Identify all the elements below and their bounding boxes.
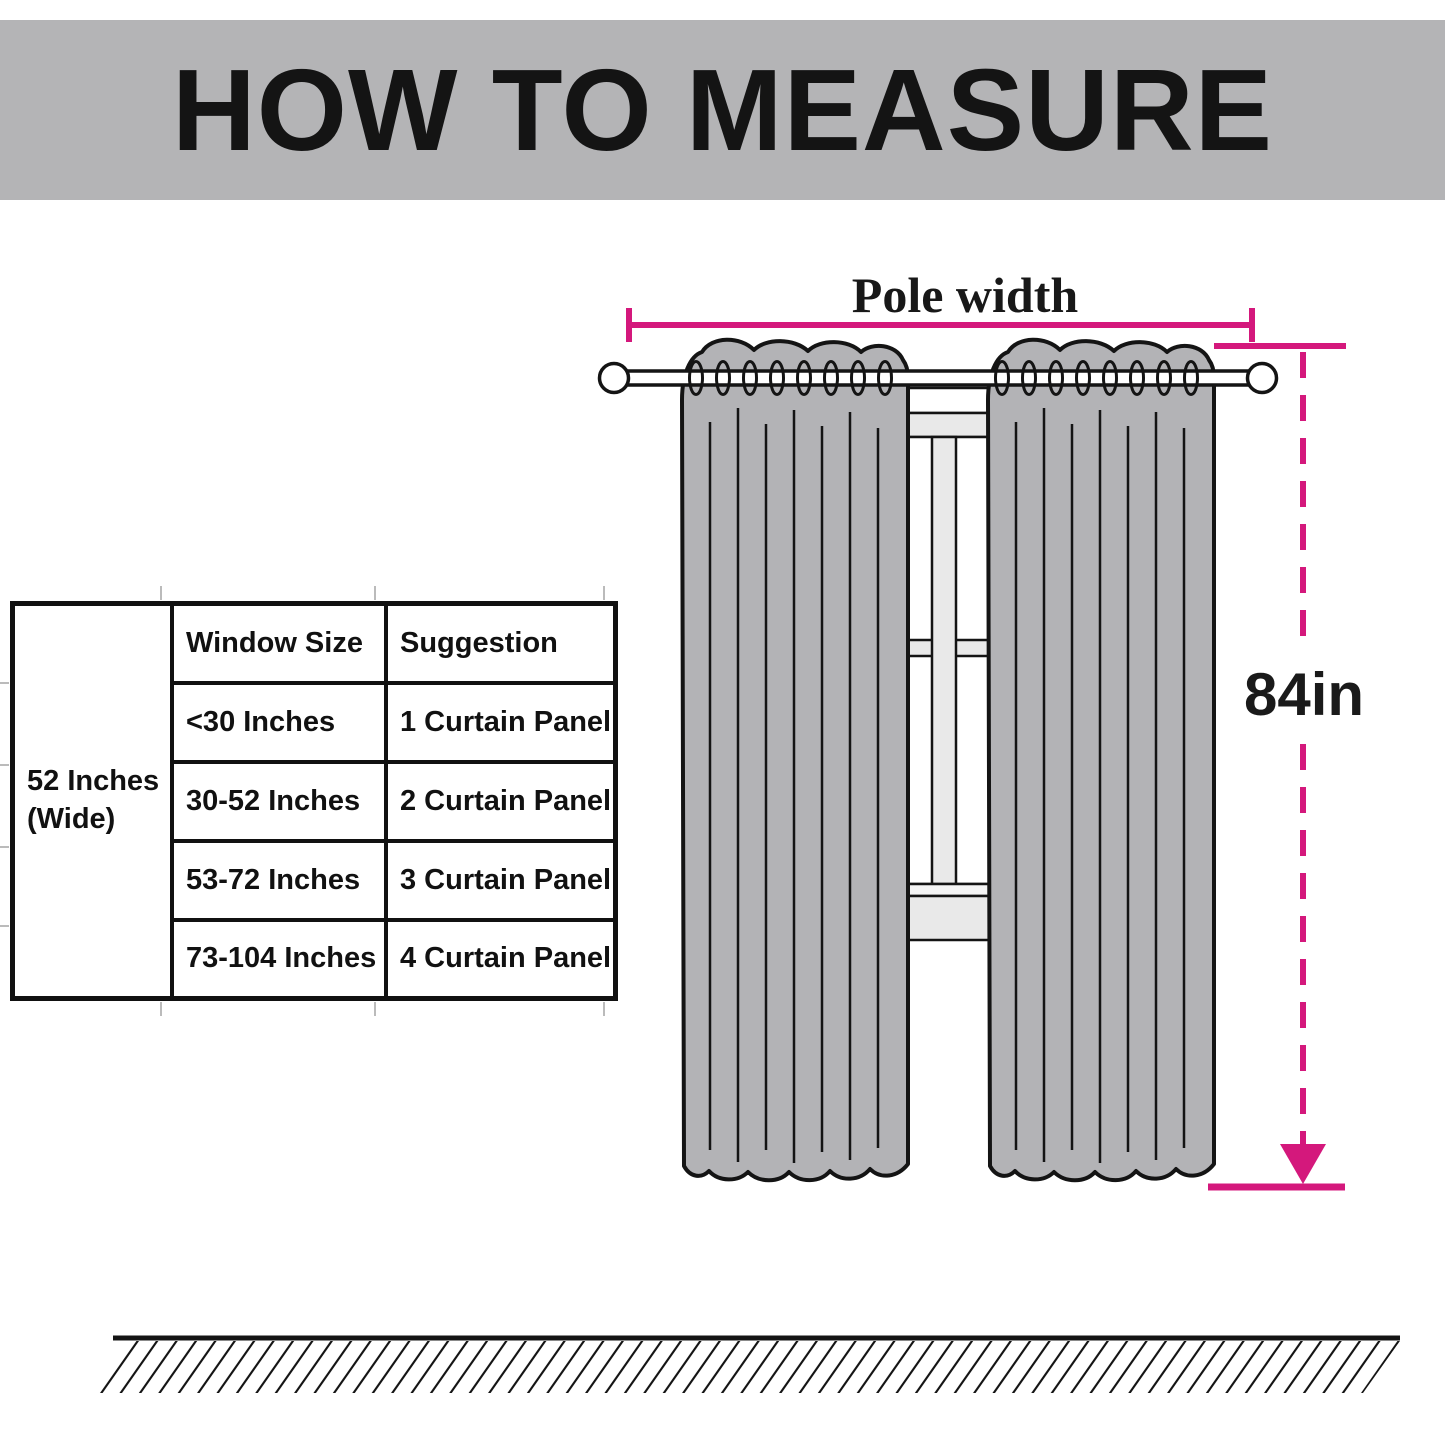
table-cell-window-size: 53-72 Inches <box>172 841 386 920</box>
height-label: 84in <box>1216 660 1392 729</box>
rod-finial-right <box>1248 364 1277 393</box>
table-header-suggestion: Suggestion <box>386 604 615 683</box>
how-to-measure-infographic: HOW TO MEASURE <box>0 0 1445 1445</box>
table-header-row: 52 Inches (Wide) Window Size Suggestion <box>13 604 616 683</box>
curtain-rod <box>600 364 1277 393</box>
pole-width-label: Pole width <box>800 266 1130 324</box>
title-banner: HOW TO MEASURE <box>0 20 1445 200</box>
table-cell-width-label: 52 Inches (Wide) <box>13 604 173 999</box>
ground-hatch <box>93 1338 1400 1393</box>
table-header-window-size: Window Size <box>172 604 386 683</box>
window-frame <box>904 388 992 940</box>
rod-finial-left <box>600 364 629 393</box>
height-measure-line <box>1208 346 1346 1187</box>
table-cell-suggestion: 1 Curtain Panel <box>386 683 615 762</box>
table-cell-window-size: 73-104 Inches <box>172 920 386 999</box>
page-title: HOW TO MEASURE <box>172 43 1273 177</box>
table-cell-suggestion: 3 Curtain Panel <box>386 841 615 920</box>
grommet-rings <box>690 362 1198 395</box>
panel-size-table: 52 Inches (Wide) Window Size Suggestion … <box>10 601 618 1001</box>
down-arrow-icon <box>1280 1144 1326 1184</box>
table-cell-window-size: 30-52 Inches <box>172 762 386 841</box>
table-cell-window-size: <30 Inches <box>172 683 386 762</box>
table-cell-suggestion: 4 Curtain Panel <box>386 920 615 999</box>
table-cell-suggestion: 2 Curtain Panel <box>386 762 615 841</box>
right-curtain-panel <box>988 340 1214 1181</box>
left-curtain-panel <box>682 340 908 1181</box>
